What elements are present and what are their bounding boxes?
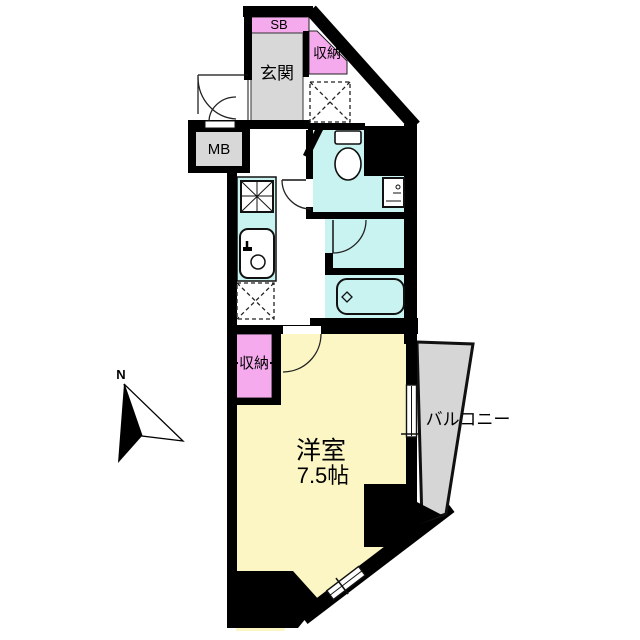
washroom-floor: [325, 219, 404, 268]
room-size-label: 7.5帖: [297, 463, 350, 488]
kitchen-sink-icon: [240, 229, 274, 278]
bathtub-icon: [337, 279, 404, 314]
room-name-label: 洋室: [296, 437, 346, 465]
toilet-icon: [335, 131, 361, 180]
sb-label: SB: [270, 17, 287, 32]
north-label: N: [116, 367, 125, 382]
meter-box-label: MB: [208, 141, 231, 158]
upper-storage-label: 収納: [313, 45, 341, 61]
lower-storage-label: 収納: [239, 355, 269, 372]
floorplan-canvas: SB 玄関 収納 MB 収納 洋室 7.5帖 バルコニー N: [0, 0, 640, 640]
gas-stove-icon: [241, 181, 273, 212]
balcony-label: バルコニー: [426, 410, 511, 429]
floorplan-drawing: SB 玄関 収納 MB 収納 洋室 7.5帖 バルコニー N: [0, 0, 640, 640]
washbasin-icon: [383, 178, 404, 207]
entrance-label: 玄関: [260, 64, 294, 83]
